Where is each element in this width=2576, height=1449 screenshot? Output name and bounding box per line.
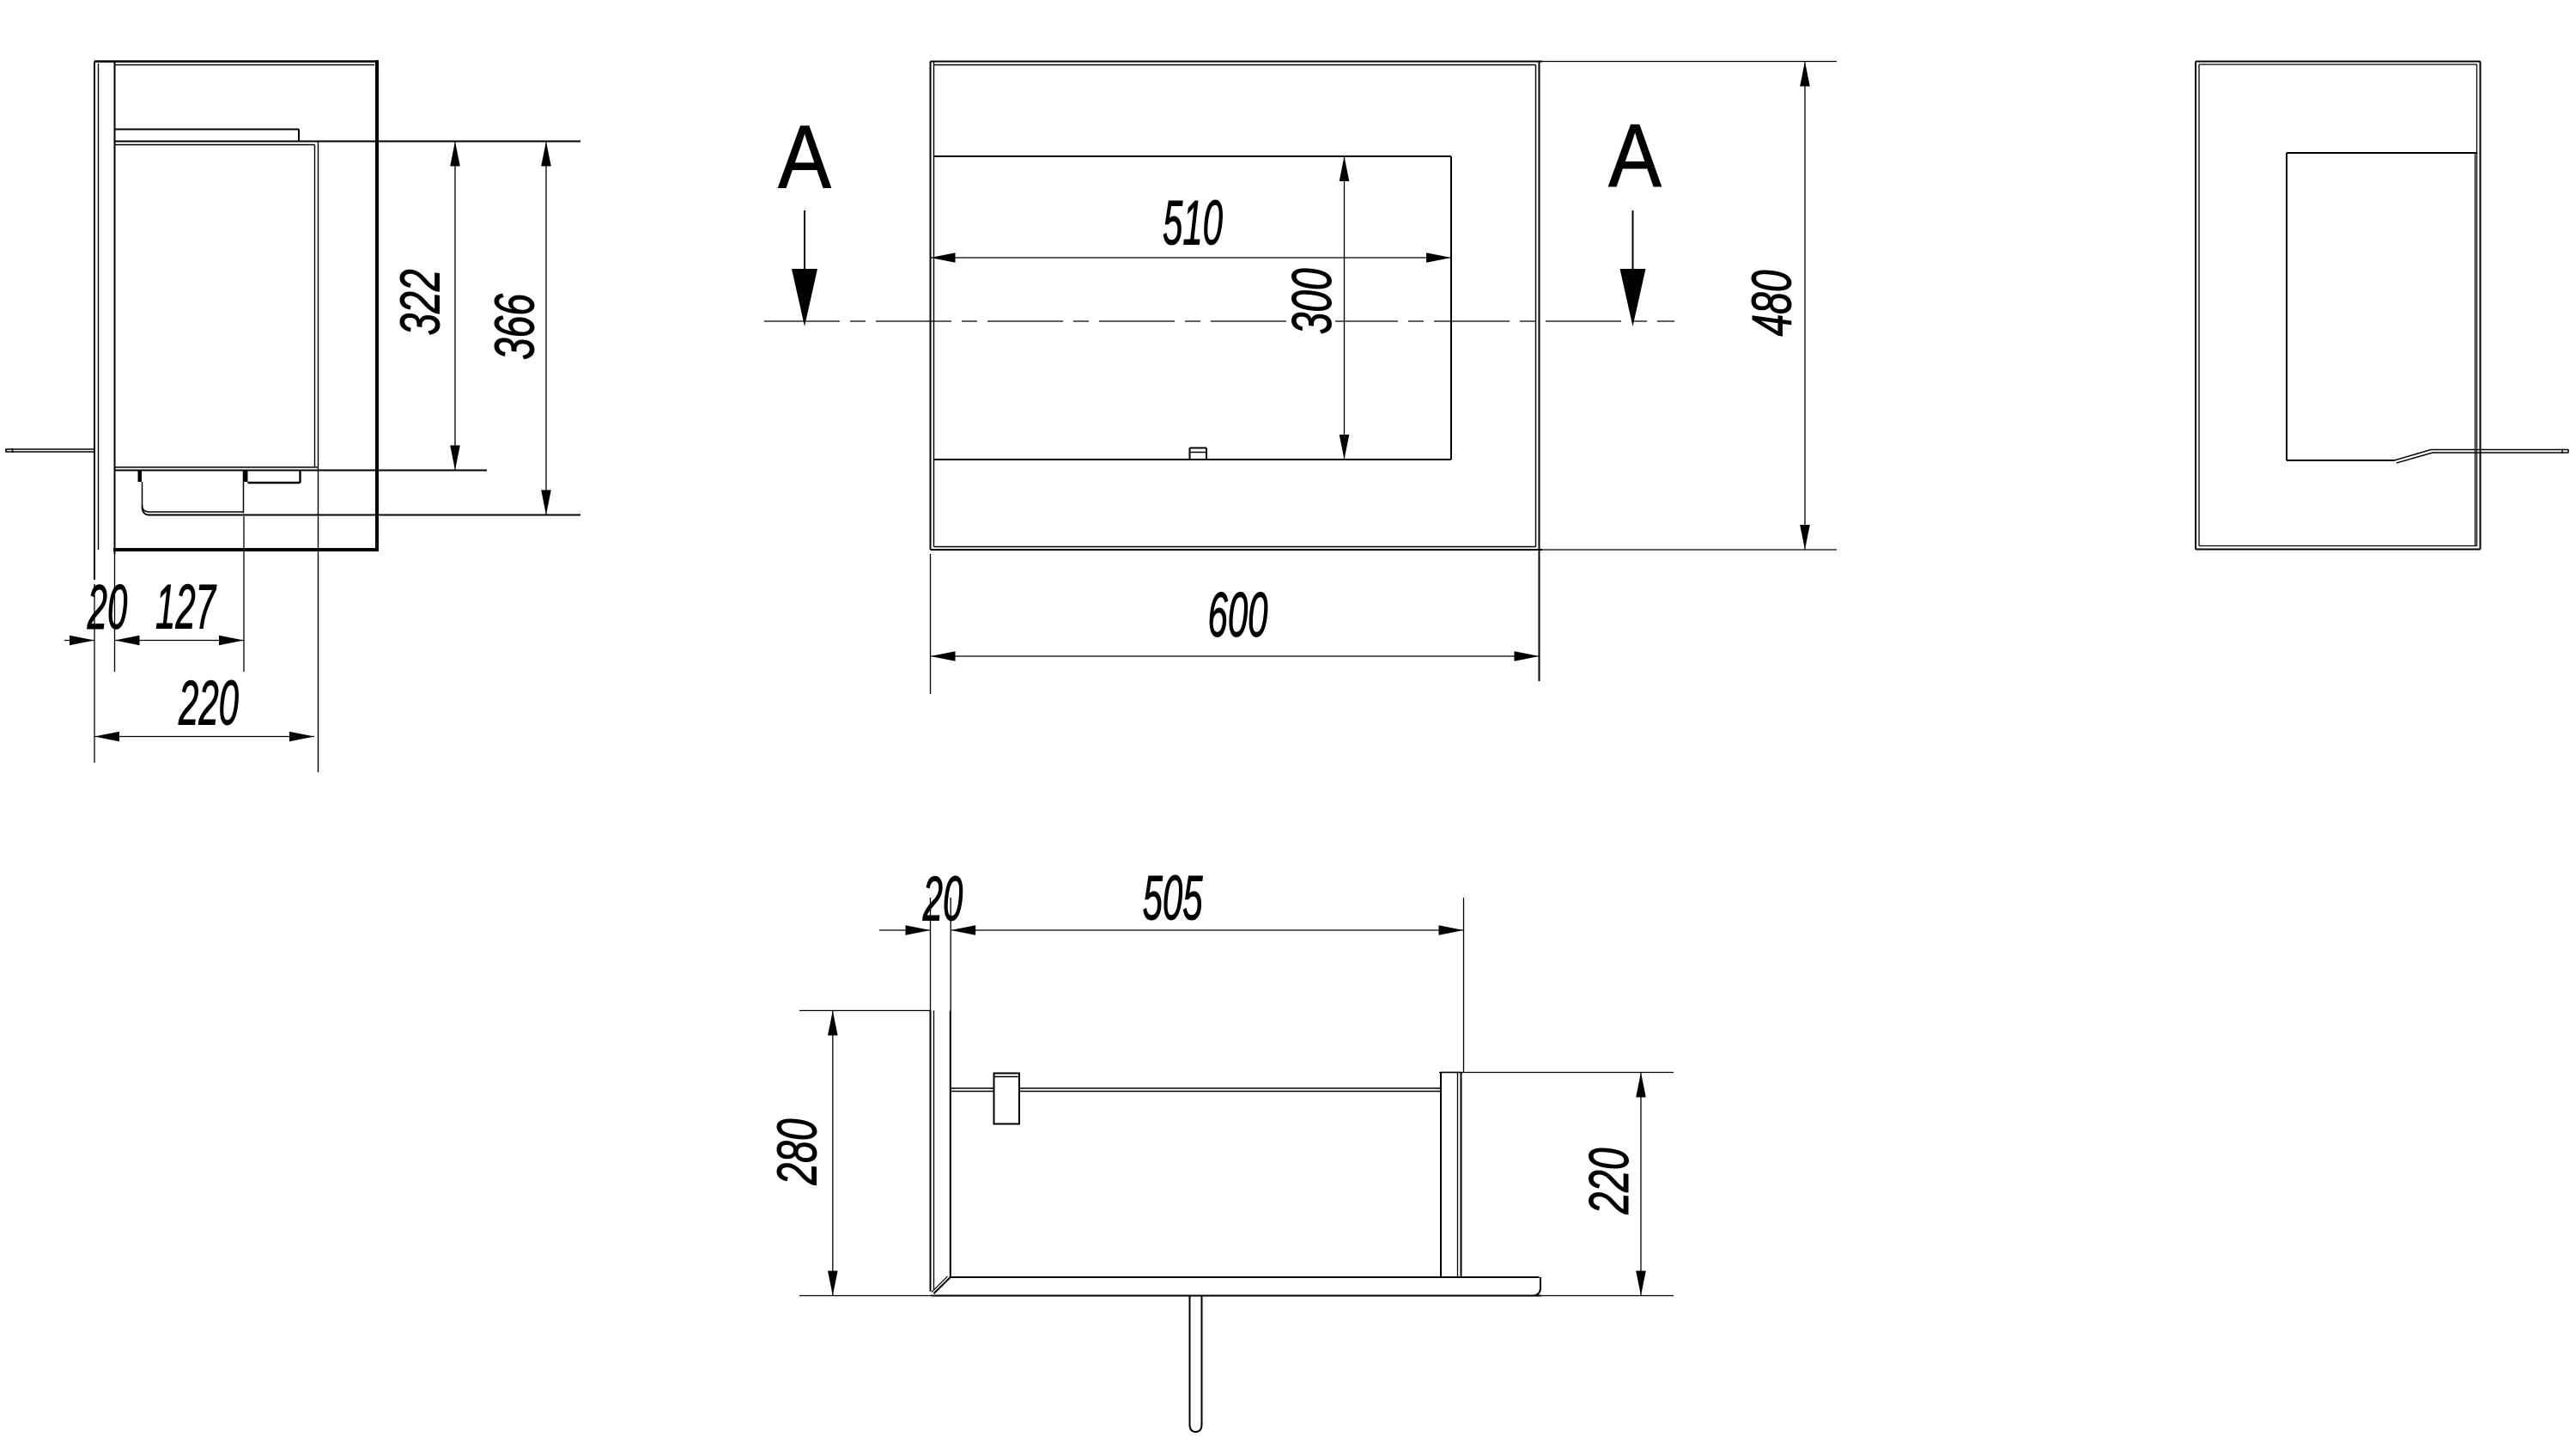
svg-text:220: 220 xyxy=(1577,1148,1640,1215)
svg-text:220: 220 xyxy=(178,667,239,738)
svg-text:A: A xyxy=(1608,106,1662,205)
svg-text:127: 127 xyxy=(155,571,216,642)
svg-text:510: 510 xyxy=(1163,187,1223,258)
svg-text:A: A xyxy=(778,107,831,207)
svg-text:20: 20 xyxy=(87,572,127,642)
svg-text:300: 300 xyxy=(1280,268,1343,334)
svg-text:600: 600 xyxy=(1207,580,1267,650)
svg-text:20: 20 xyxy=(922,863,963,934)
svg-text:480: 480 xyxy=(1741,271,1803,337)
svg-text:505: 505 xyxy=(1143,862,1204,933)
svg-text:366: 366 xyxy=(483,293,546,360)
svg-text:322: 322 xyxy=(389,270,452,336)
svg-text:280: 280 xyxy=(766,1119,829,1186)
